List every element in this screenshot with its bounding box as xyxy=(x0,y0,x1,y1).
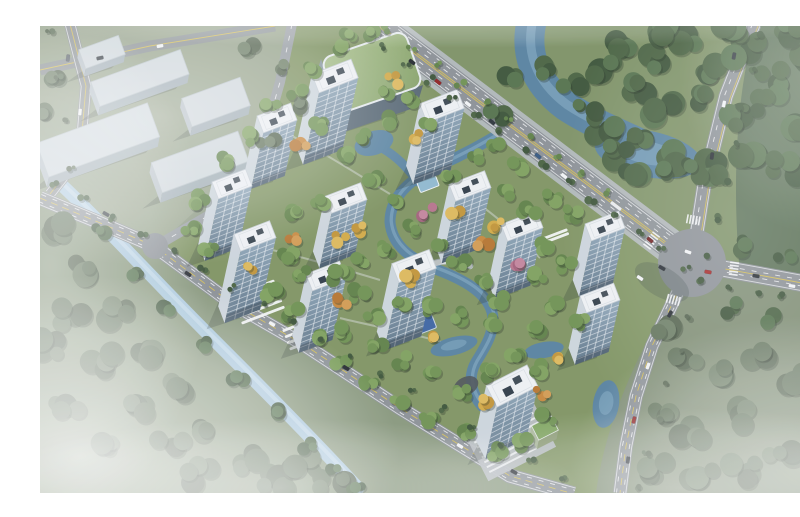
layer-haze xyxy=(40,16,800,501)
aerial-render-canvas xyxy=(40,16,800,501)
aerial-site-render xyxy=(40,16,800,501)
letterbox-bottom xyxy=(40,493,800,501)
letterbox-top xyxy=(40,16,800,26)
atmosphere-tint xyxy=(40,26,800,493)
